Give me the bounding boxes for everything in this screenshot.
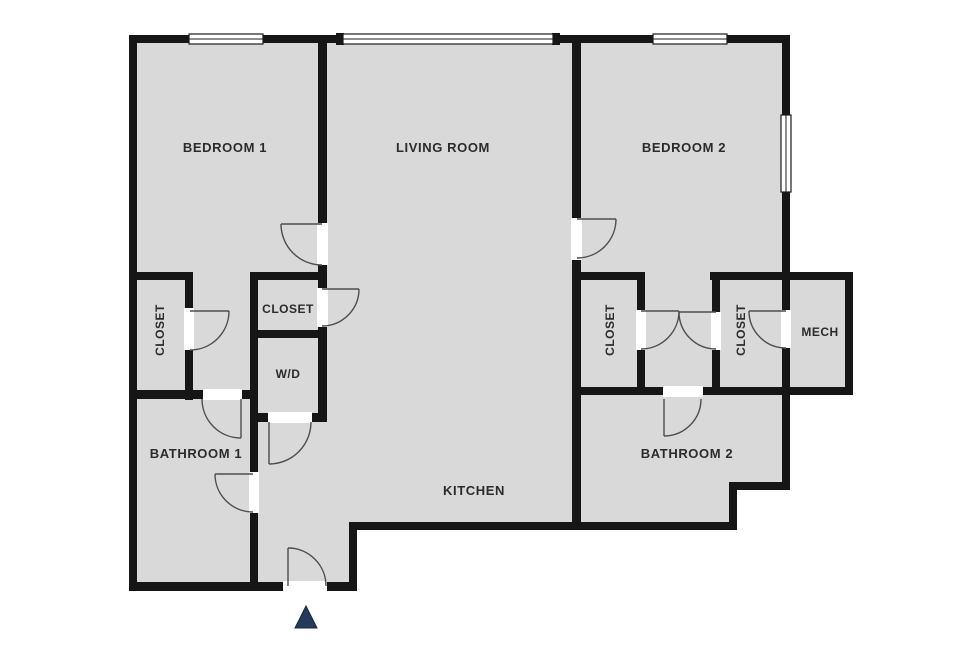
- wall: [349, 522, 357, 591]
- wall: [349, 522, 737, 530]
- window: [653, 34, 727, 44]
- wall: [845, 272, 853, 395]
- door-opening: [571, 218, 582, 260]
- window: [189, 34, 263, 44]
- wall: [250, 272, 327, 280]
- door-opening: [781, 310, 791, 348]
- door-opening: [249, 472, 259, 513]
- wall: [250, 272, 258, 591]
- door-opening: [184, 308, 194, 350]
- floor-plan-svg: BEDROOM 1 LIVING ROOM BEDROOM 2 CLOSET C…: [0, 0, 960, 649]
- room-label-closet-right-1: CLOSET: [603, 304, 617, 356]
- wall: [729, 482, 790, 490]
- room-label-closet-right-2: CLOSET: [734, 304, 748, 356]
- floor-plan: BEDROOM 1 LIVING ROOM BEDROOM 2 CLOSET C…: [0, 0, 960, 649]
- wall: [572, 35, 581, 530]
- room-label-closet-left: CLOSET: [153, 304, 167, 356]
- door-opening: [636, 310, 646, 350]
- wall: [710, 272, 853, 280]
- wall: [782, 395, 790, 490]
- wall: [129, 35, 137, 591]
- room-label-kitchen: KITCHEN: [443, 483, 505, 498]
- door-opening: [711, 312, 721, 350]
- wall: [129, 272, 193, 280]
- entrance-marker-icon: [295, 606, 317, 628]
- door-opening: [663, 386, 703, 397]
- room-label-mech: MECH: [801, 325, 838, 339]
- door-opening: [268, 412, 312, 423]
- room-label-bathroom-2: BATHROOM 2: [641, 446, 733, 461]
- room-label-washer-dryer: W/D: [276, 367, 301, 381]
- door-opening: [203, 389, 242, 400]
- door-opening: [317, 288, 328, 327]
- room-label-bedroom-1: BEDROOM 1: [183, 140, 267, 155]
- room-label-bedroom-2: BEDROOM 2: [642, 140, 726, 155]
- wall: [250, 330, 327, 338]
- wall: [572, 272, 645, 280]
- door-opening: [317, 223, 328, 265]
- window: [343, 34, 553, 44]
- room-label-closet-center: CLOSET: [262, 302, 314, 316]
- room-label-bathroom-1: BATHROOM 1: [150, 446, 242, 461]
- window: [781, 115, 791, 192]
- door-opening: [283, 581, 327, 592]
- room-label-living-room: LIVING ROOM: [396, 140, 490, 155]
